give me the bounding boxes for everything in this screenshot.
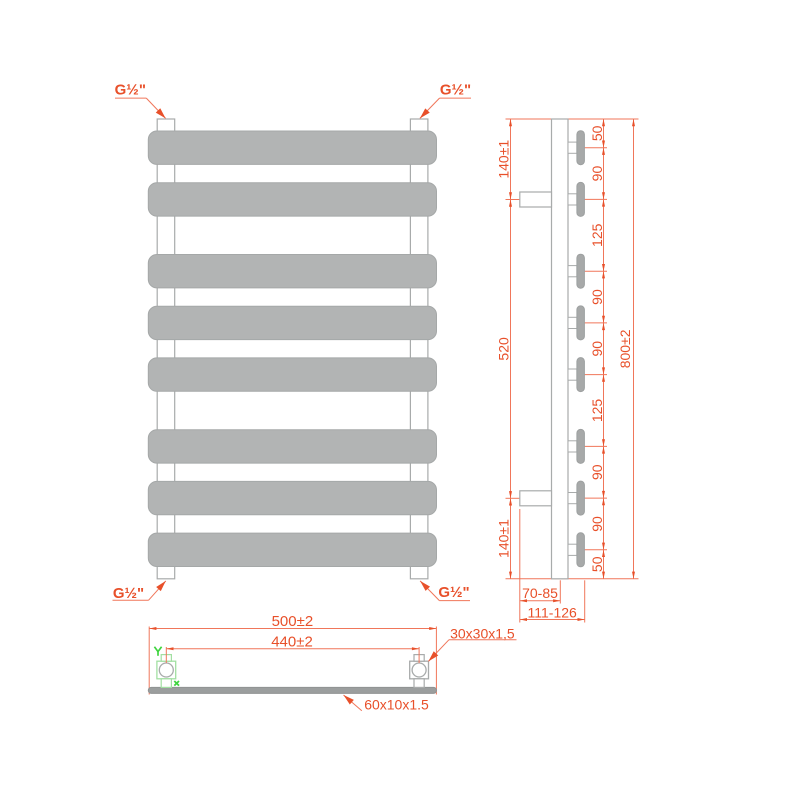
svg-text:G½": G½": [113, 585, 144, 602]
svg-text:G½": G½": [438, 584, 469, 601]
svg-text:60x10x1.5: 60x10x1.5: [364, 697, 429, 713]
svg-text:90: 90: [589, 341, 605, 357]
svg-text:500±2: 500±2: [272, 613, 314, 630]
svg-text:520: 520: [495, 337, 511, 361]
svg-text:G½": G½": [115, 82, 146, 99]
svg-text:90: 90: [589, 516, 605, 532]
svg-text:125: 125: [589, 399, 605, 423]
svg-text:90: 90: [589, 464, 605, 480]
svg-text:90: 90: [589, 166, 605, 182]
svg-text:90: 90: [589, 289, 605, 305]
svg-text:G½": G½": [440, 82, 471, 99]
svg-text:30x30x1,5: 30x30x1,5: [450, 626, 515, 642]
svg-text:70-85: 70-85: [522, 585, 558, 601]
svg-text:140±1: 140±1: [495, 140, 511, 179]
svg-text:440±2: 440±2: [271, 634, 313, 651]
svg-text:140±1: 140±1: [495, 519, 511, 558]
svg-text:125: 125: [589, 223, 605, 247]
svg-text:50: 50: [589, 556, 605, 572]
svg-text:800±2: 800±2: [617, 329, 633, 368]
svg-text:50: 50: [589, 125, 605, 141]
svg-text:111-126: 111-126: [528, 604, 578, 620]
